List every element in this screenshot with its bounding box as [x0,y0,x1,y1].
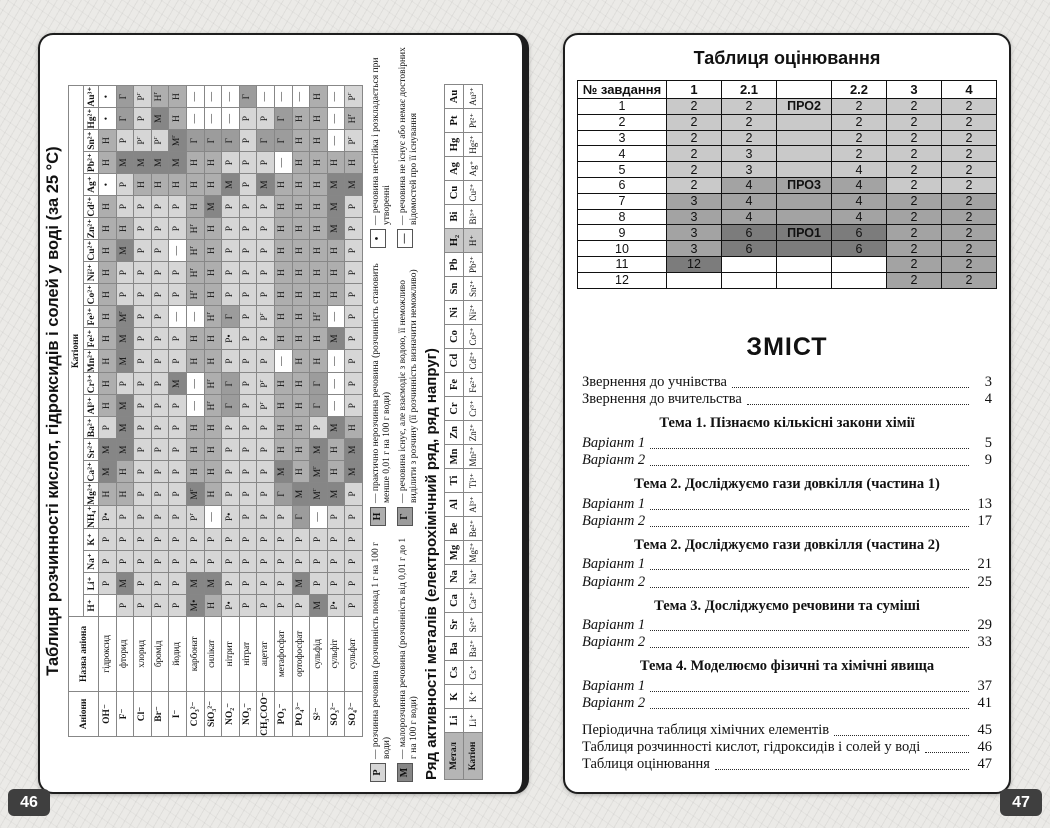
grading-cell: 2 [667,99,722,115]
grading-cell [777,162,832,178]
solubility-cell: Р [151,505,169,528]
anion-row: PO₄³⁻ортофосфатРМРРГМННННННННННННННННН— [292,86,310,737]
solubility-cell: Мг [186,483,204,506]
solubility-cell: М [204,572,222,594]
hydrolysis-mark: г [346,137,353,140]
solubility-cell: М [345,439,363,461]
solubility-cell: М [116,395,134,417]
solubility-cell: Р [151,262,169,284]
grading-cell: 2 [887,209,942,225]
solubility-cell: Рг [151,130,169,152]
toc-entry: Таблиця розчинності кислот, гідроксидів … [582,739,992,756]
solubility-cell: Р [345,528,363,550]
solubility-cell: Г [116,108,134,130]
solubility-cell: Р [345,594,363,616]
grading-cell: 2 [942,114,997,130]
hydrolysis-mark: г [346,114,353,117]
solubility-cell: Н [151,174,169,196]
solubility-cell: Р [310,528,328,550]
legend-symbol-box: — [397,229,413,248]
solubility-cell: Н [274,196,292,218]
solubility-cell: Р [134,350,152,373]
solubility-cell: Рг [257,395,275,417]
solubility-cell: Р [151,395,169,417]
grading-cell: 2 [832,99,887,115]
solubility-cell: Р [345,373,363,395]
metal-cell: Cs [445,661,464,685]
solubility-cell: Н [99,395,117,417]
solubility-cell: Р [327,505,345,528]
solubility-cell: Р [257,262,275,284]
solubility-cell: Р [345,306,363,328]
solubility-cell: — [169,240,187,262]
solubility-cell: Р [222,461,240,483]
solubility-cell: • [99,174,117,196]
grading-cell: 2 [942,225,997,241]
solubility-cell: М [99,461,117,483]
solubility-cell: Р [257,108,275,130]
anion-name: сульфід [310,616,328,691]
solubility-cell: Г [274,108,292,130]
solubility-cell: Н [310,328,328,350]
solubility-cell: Р [169,550,187,572]
solubility-cell: Н [99,284,117,306]
solubility-cell: — [327,350,345,373]
toc-dot-leader [732,387,969,388]
solubility-cell: Н [204,174,222,196]
cation-symbol: K⁺ [84,528,99,550]
solubility-cell: — [327,108,345,130]
metal-cell: Sr [445,613,464,637]
toc-dot-leader [650,708,969,709]
toc-entry: Варіант 29 [582,452,992,469]
solubility-cell: Н [274,262,292,284]
solubility-cell: Н [186,152,204,174]
toc-page-number: 47 [974,756,992,773]
solubility-cell: Р [151,328,169,350]
solubility-cell: Н [310,218,328,240]
solubility-cell: Р [169,461,187,483]
solubility-cell: Н [204,350,222,373]
grading-cell [777,193,832,209]
grading-header-cell: 4 [942,81,997,99]
cation-cell: Ni²⁺ [464,301,483,325]
toc-list: Звернення до учнівства3Звернення до вчит… [565,374,1009,774]
solubility-cell: М [222,174,240,196]
solubility-cell: Н [327,262,345,284]
toc-page-number: 25 [974,574,992,591]
toc-entry: Варіант 129 [582,617,992,634]
solubility-cell: Н [292,284,310,306]
solubility-cell: Н [345,152,363,174]
solubility-cell: Н [204,439,222,461]
solubility-cell: Г [222,306,240,328]
toc-page-number: 5 [974,435,992,452]
toc-dot-leader [650,509,969,510]
activity-series-title: Ряд активності металів (електрохімічний … [423,36,440,780]
solubility-cell: Р [222,417,240,439]
solubility-cell: Р [292,550,310,572]
cation-symbol: Mg²⁺ [84,483,99,506]
anion-row: CH₃COO⁻ацетатРРРРРРРРРРгРгРРРгРРРРРМРГР— [257,86,275,737]
solubility-cell: Р [292,528,310,550]
solubility-cell: Мг [116,306,134,328]
toc-dot-leader [650,569,969,570]
anion-row: OH⁻гідроксидРРРР•НММРНННННННННН•НН•• [99,86,117,737]
solubility-cell: Р [116,594,134,616]
solubility-cell: Р [257,550,275,572]
solubility-cell: Р [151,373,169,395]
grading-cell: 3 [578,130,667,146]
solubility-cell: Р [327,572,345,594]
page-number-badge: 47 [1000,789,1042,816]
solubility-cell: Н [274,328,292,350]
toc-title: ЗМІСТ [565,333,1009,362]
grading-cell: 4 [832,177,887,193]
solubility-cell: Н [327,284,345,306]
solubility-cell: Н [292,196,310,218]
solubility-cell: Р [134,218,152,240]
solubility-cell: Р [116,262,134,284]
toc-page-number: 29 [974,617,992,634]
solubility-cell: М [116,240,134,262]
anion-name: йодид [169,616,187,691]
hydrolysis-mark: г [117,311,124,314]
solubility-cell: — [274,350,292,373]
toc-entry: Варіант 15 [582,434,992,451]
solubility-cell: Р [239,505,257,528]
solubility-table: Аніони Назва аніона Катіони H⁺Li⁺Na⁺K⁺NH… [68,85,363,737]
solubility-cell: Р [134,196,152,218]
solubility-cell: М [151,152,169,174]
solubility-cell: Н [292,108,310,130]
solubility-cell: — [257,86,275,108]
toc-entry-label: Варіант 1 [582,496,645,513]
grading-cell [667,272,722,288]
grading-cell: 2 [887,272,942,288]
solubility-cell: Н [310,196,328,218]
cation-cell: Fe²⁺ [464,373,483,397]
solubility-cell: Р [116,130,134,152]
solubility-cell: Р [169,417,187,439]
solubility-cell: Р [222,196,240,218]
solubility-cell: Р [239,550,257,572]
cation-cell: Ag⁺ [464,157,483,181]
solubility-cell: Р [151,417,169,439]
grading-cell: 2 [942,177,997,193]
solubility-cell: М [292,572,310,594]
solubility-cell: Н [292,439,310,461]
solubility-cell: Р [134,306,152,328]
solubility-cell: Г [274,483,292,506]
solubility-cell: Г [222,130,240,152]
cation-cell: Cr³⁺ [464,397,483,421]
grading-row: 834422 [578,209,997,225]
grading-cell: 2 [887,162,942,178]
solubility-cell: Н [169,86,187,108]
toc-heading: Тема 2. Досліджуємо гази довкілля (части… [582,476,992,493]
solubility-cell: М [116,350,134,373]
solubility-cell: Р [274,550,292,572]
toc-page-number: 9 [974,452,992,469]
solubility-cell: Р [239,284,257,306]
solubility-cell: Р [169,483,187,506]
solubility-cell: Рг [345,86,363,108]
solubility-cell: Н [327,439,345,461]
solubility-cell: Н [204,417,222,439]
solubility-cell: Г [239,86,257,108]
grading-cell: 3 [667,209,722,225]
grading-cell: 2 [887,241,942,257]
toc-entry-label: Варіант 2 [582,695,645,712]
toc-entry-label: Варіант 1 [582,556,645,573]
grading-cell [722,256,777,272]
metal-cell: Bi [445,205,464,229]
anions-header: Аніони [69,691,99,736]
solubility-cell: — [327,130,345,152]
anion-formula: S²⁻ [310,691,328,736]
solubility-cell: Мг [310,461,328,483]
metal-cell: Ca [445,589,464,613]
anion-row: NO₃⁻нітратРРРРРРРРРРРРРРРРРРРРРРРГ [239,86,257,737]
toc-entry-label: Варіант 1 [582,617,645,634]
grading-header-cell: 2.1 [722,81,777,99]
solubility-cell: Р [274,572,292,594]
solubility-cell: Н [186,328,204,350]
metal-cell: Ni [445,301,464,325]
anion-formula: PO₄³⁻ [292,691,310,736]
solubility-cell: Р [186,550,204,572]
solubility-cell: Р [239,395,257,417]
solubility-cell: Р [99,528,117,550]
solubility-cell: М• [186,594,204,616]
solubility-cell: Р [257,240,275,262]
solubility-cell: Р [239,417,257,439]
solubility-cell: Р [134,373,152,395]
grading-cell: 2 [887,114,942,130]
solubility-cell: Р [239,152,257,174]
cation-cell: Au³⁺ [464,85,483,109]
cation-symbol: Ca²⁺ [84,461,99,483]
toc-page-number: 45 [974,722,992,739]
solubility-cell: Р [151,550,169,572]
solubility-cell: Нг [345,108,363,130]
anion-formula: Cl⁻ [134,691,152,736]
grading-cell [777,209,832,225]
cation-cell: Na⁺ [464,565,483,589]
solubility-cell: Г [222,373,240,395]
cation-symbol: Sn²⁺ [84,130,99,152]
hydrolysis-mark: г [187,513,194,516]
grading-cell: ПРО3 [777,177,832,193]
grading-header-cell: 1 [667,81,722,99]
cation-cell: Pb²⁺ [464,253,483,277]
solubility-cell: Н [116,218,134,240]
solubility-cell: Р [99,417,117,439]
toc-dot-leader [715,769,969,770]
solubility-cell: Г [310,373,328,395]
solubility-cell: Н [292,373,310,395]
solubility-cell: Рг [345,130,363,152]
cation-cell: K⁺ [464,685,483,709]
toc-page-number: 4 [974,391,992,408]
toc-heading: Тема 1. Пізнаємо кількісні закони хімії [582,415,992,432]
cation-cell: Mn²⁺ [464,445,483,469]
solubility-cell: Р [151,218,169,240]
solubility-cell: Н [310,152,328,174]
hydrolysis-mark: г [135,137,142,140]
anion-name: хлорид [134,616,152,691]
solubility-cell: М [327,196,345,218]
solubility-cell: — [292,86,310,108]
solubility-cell: — [204,108,222,130]
toc-entry: Варіант 113 [582,495,992,512]
anion-name: силікат [204,616,222,691]
solubility-cell: Р [310,550,328,572]
solubility-cell: М [134,152,152,174]
solubility-cell: Н [99,130,117,152]
cations-header: Катіони [69,86,84,617]
cation-symbol: Au³⁺ [84,86,99,108]
solubility-cell: Р [257,483,275,506]
grading-cell: 4 [722,209,777,225]
grading-cell: 2 [942,209,997,225]
solubility-cell: Н [274,174,292,196]
grading-cell: 4 [832,209,887,225]
solubility-cell: — [186,395,204,417]
grading-cell: 4 [832,193,887,209]
solubility-cell: Р [116,528,134,550]
solubility-cell: Н [204,461,222,483]
legend-entry: •— речовина нестійка і розкладається при… [370,42,392,248]
anion-row: I⁻йодидРРРРРРРРРРМРР—РР—РРНММгНН [169,86,187,737]
cation-symbol: Pb²⁺ [84,152,99,174]
solubility-cell: Н [169,174,187,196]
grading-row: 624ПРО3422 [578,177,997,193]
toc-entry: Звернення до учнівства3 [582,374,992,391]
solubility-cell: Р [257,505,275,528]
solubility-cell: М [116,572,134,594]
solubility-cell: Н [99,262,117,284]
solubility-cell: Р [345,328,363,350]
toc-dot-leader [650,448,969,449]
solubility-cell: Р [169,528,187,550]
solubility-cell: Н [99,240,117,262]
solubility-cell: Р [222,218,240,240]
solubility-cell: Н [310,86,328,108]
rotated-solubility-block: Таблиця розчинності кислот, гідроксидів … [41,36,511,786]
solubility-cell: Р [134,240,152,262]
solubility-cell: Р [134,108,152,130]
solubility-cell: М [274,461,292,483]
anion-name: сульфат [345,616,363,691]
legend-entry: Н— практично нерозчинна речовина (розчин… [370,258,392,526]
solubility-cell: Р [169,196,187,218]
grading-cell: 10 [578,241,667,257]
anion-row: SiO₃²⁻силікатНМРР—НННННгНгНННгННННМННГ—— [204,86,222,737]
metal-cell: Pt [445,109,464,133]
grading-cell: 12 [578,272,667,288]
solubility-cell: Г [310,395,328,417]
solubility-cell: Р [239,174,257,196]
solubility-cell: Р [345,240,363,262]
solubility-cell: Нг [186,262,204,284]
grading-cell: 8 [578,209,667,225]
toc-dot-leader [925,752,969,753]
solubility-cell: — [186,86,204,108]
grading-cell [777,114,832,130]
solubility-cell: Н [99,306,117,328]
metal-cell: Mn [445,445,464,469]
solubility-cell: • [99,108,117,130]
solubility-cell: Р [345,483,363,506]
solubility-cell: Р [151,483,169,506]
solubility-cell: Р [186,528,204,550]
solubility-cell: Н [274,373,292,395]
solubility-cell: М [327,218,345,240]
solubility-cell: Н [186,417,204,439]
solubility-cell: Р [134,395,152,417]
solubility-cell: Н [292,350,310,373]
grading-cell: 2 [578,114,667,130]
grading-cell: 2 [887,225,942,241]
solubility-cell: Р• [222,594,240,616]
solubility-cell: Н [292,262,310,284]
anion-name: гідроксид [99,616,117,691]
activity-series-table: Метал LiKCsBaSrCaNaMgBeAlTiMnZnCrFeCdCoN… [444,84,483,780]
solubility-cell: Нг [204,306,222,328]
solubility-cell: Р [169,439,187,461]
grading-cell [777,272,832,288]
solubility-cell: Р [345,196,363,218]
solubility-cell: Р [222,262,240,284]
metal-cell: Cr [445,397,464,421]
solubility-cell: Н [292,328,310,350]
grading-cell: 4 [578,146,667,162]
solubility-cell: Р [169,594,187,616]
solubility-cell: Р [169,572,187,594]
solubility-cell: М [116,328,134,350]
solubility-cell: Р [116,505,134,528]
toc-page-number: 13 [974,496,992,513]
grading-cell: 2 [832,130,887,146]
solubility-cell: Н [310,130,328,152]
solubility-cell: Р [239,196,257,218]
solubility-cell: Г [257,130,275,152]
cation-symbol: Cr³⁺ [84,373,99,395]
solubility-cell: Н [169,108,187,130]
solubility-cell: Н [116,483,134,506]
solubility-cell: Н [99,483,117,506]
solubility-cell: Р [257,152,275,174]
grading-cell: 2 [942,241,997,257]
solubility-cell: Нг [310,306,328,328]
anion-formula: Br⁻ [151,691,169,736]
solubility-cell: Н [310,174,328,196]
solubility-cell: Мг [169,130,187,152]
solubility-cell: Р• [222,505,240,528]
metal-cell: Li [445,709,464,733]
solubility-cell: • [99,86,117,108]
anion-formula: OH⁻ [99,691,117,736]
grading-cell: 2 [667,130,722,146]
metal-cell: Ba [445,637,464,661]
metal-cell: Cd [445,349,464,373]
grading-cell: 6 [578,177,667,193]
toc-dot-leader [834,735,969,736]
solubility-cell: Н [274,218,292,240]
solubility-cell: Н [186,439,204,461]
